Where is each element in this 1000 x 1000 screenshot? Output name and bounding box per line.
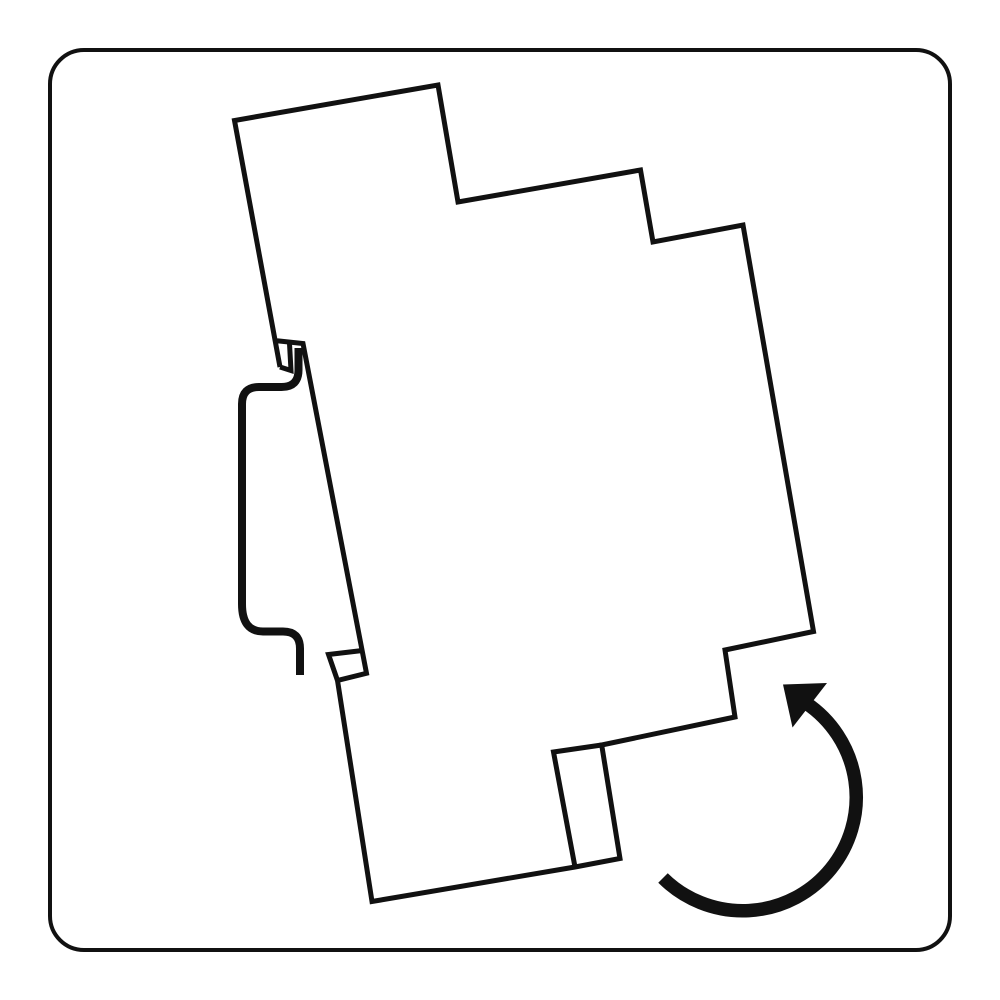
border-frame [50, 50, 950, 950]
din-rail-mounting-diagram [0, 0, 1000, 1000]
diagram-canvas [0, 0, 1000, 1000]
